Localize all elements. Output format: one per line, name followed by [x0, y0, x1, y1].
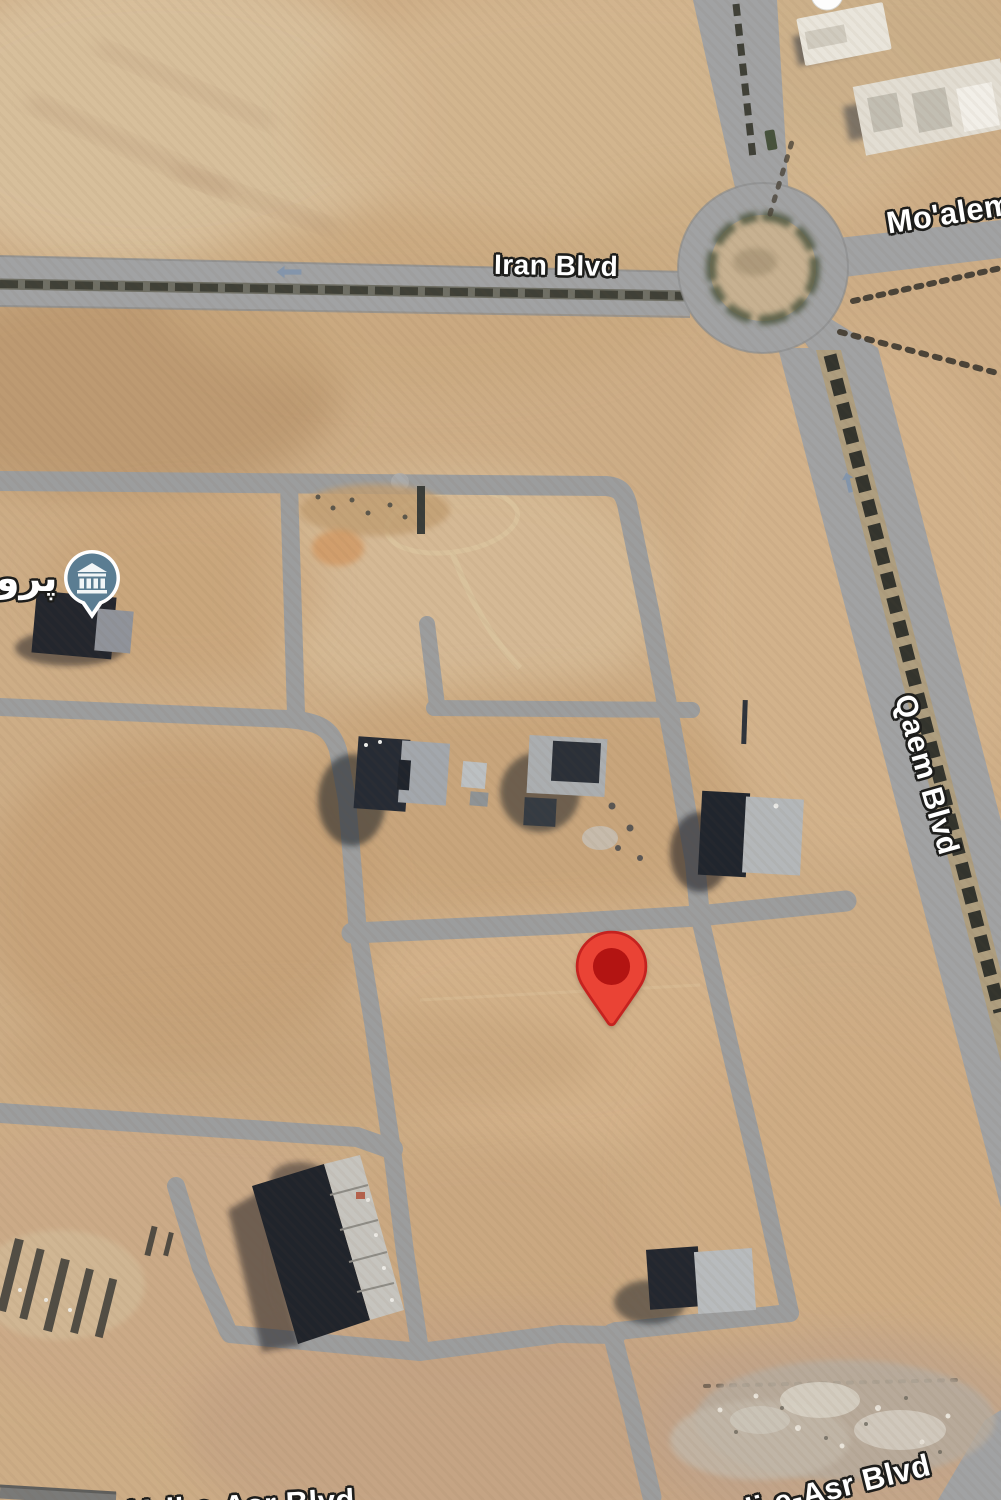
map-viewport[interactable]: Iran Blvd Mo'alem Qaem Blvd Vali-e-Asr B… — [0, 0, 1001, 1500]
red-pin-icon — [574, 929, 649, 1029]
destination-pin[interactable] — [574, 929, 649, 1029]
roundabout — [678, 183, 848, 353]
partial-poi-marker[interactable] — [809, 0, 845, 14]
terrain — [0, 0, 1001, 1500]
satellite-imagery — [0, 0, 1001, 1500]
poi-label: پروژ — [0, 556, 57, 600]
road-label-iran-blvd: Iran Blvd — [494, 249, 619, 283]
museum-poi-marker[interactable] — [62, 548, 122, 622]
oneway-left-arrow-icon — [274, 264, 304, 280]
